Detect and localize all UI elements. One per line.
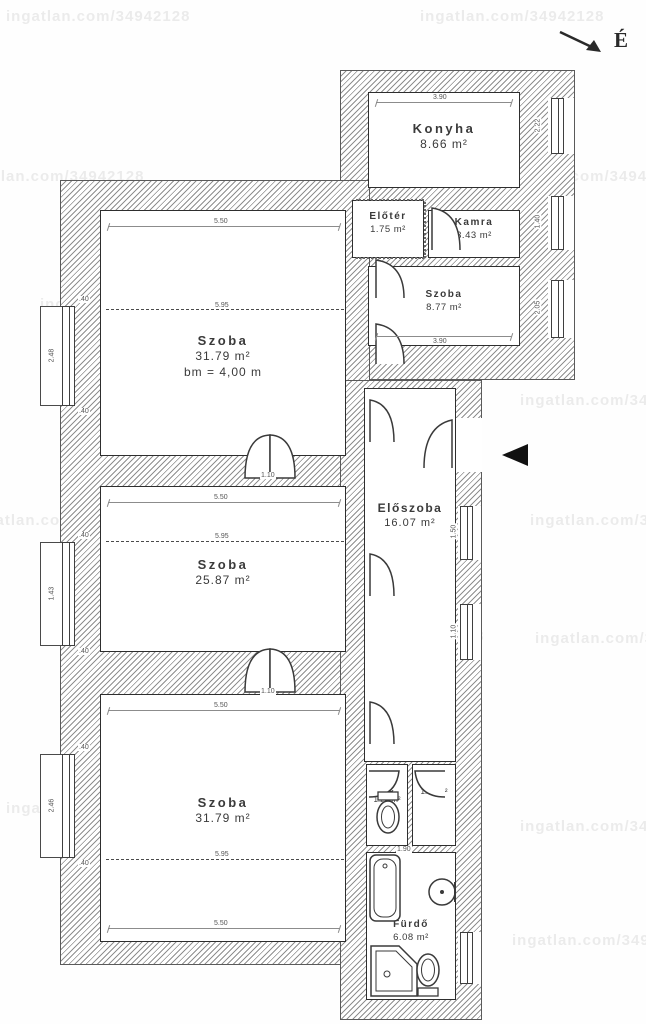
room-eloter: Előtér 1.75 m² xyxy=(352,200,424,258)
dimension-label: 5.50 xyxy=(213,218,229,225)
dimension-line xyxy=(108,502,340,503)
toilet-icon xyxy=(374,790,402,838)
dimension-label: 1.10 xyxy=(450,624,457,640)
room-name: Előtér xyxy=(353,211,423,224)
window-icon xyxy=(551,98,564,154)
door-arc-icon xyxy=(422,418,456,470)
north-arrow-icon xyxy=(556,24,612,64)
watermark: ingatlan.com/34942128 xyxy=(6,8,190,25)
dimension-label: 2.22 xyxy=(534,118,541,134)
dimension-label: .40 xyxy=(78,744,90,751)
dimension-line xyxy=(108,226,340,227)
room-area: 31.79 m² xyxy=(101,811,345,827)
door-arc-icon xyxy=(413,767,447,799)
dimension-label: 1.40 xyxy=(534,214,541,230)
window-icon xyxy=(460,932,473,984)
open-passage xyxy=(356,199,424,201)
room-area: 6.08 m² xyxy=(367,932,455,944)
dimension-line xyxy=(108,928,340,929)
dimension-line xyxy=(108,710,340,711)
dimension-label: 2.46 xyxy=(48,798,55,814)
double-door-icon xyxy=(242,646,298,694)
dimension-label: .40 xyxy=(78,408,90,415)
dimension-label: 5.95 xyxy=(214,533,230,540)
window-icon xyxy=(460,604,473,660)
room-area: 8.77 m² xyxy=(369,302,519,314)
room-name: Szoba xyxy=(101,795,345,811)
door-arc-icon xyxy=(366,552,396,598)
dimension-label: 1.10 xyxy=(260,472,276,479)
dimension-label: .40 xyxy=(78,296,90,303)
window-icon xyxy=(460,506,473,560)
watermark: ingatlan.com/34942128 xyxy=(535,630,646,647)
dimension-label: 3.90 xyxy=(432,338,448,345)
watermark: ingatlan.com/34942128 xyxy=(512,932,646,949)
door-arc-icon xyxy=(372,258,406,300)
window-icon xyxy=(62,542,75,646)
bathtub-icon xyxy=(369,854,401,922)
dimension-label: 2.05 xyxy=(534,300,541,316)
toilet-icon xyxy=(414,950,442,998)
window-icon xyxy=(551,280,564,338)
dimension-label: 1.10 xyxy=(260,688,276,695)
open-passage xyxy=(424,202,426,258)
window-icon xyxy=(62,306,75,406)
room-name: Konyha xyxy=(369,121,519,137)
floor-plan: ingatlan.com/34942128 ingatlan.com/34942… xyxy=(0,0,646,1024)
sink-icon xyxy=(426,876,456,908)
entrance-arrow-icon xyxy=(502,444,528,466)
dimension-label: .40 xyxy=(78,648,90,655)
room-name: Előszoba xyxy=(365,501,455,516)
room-szoba-felso: Szoba 31.79 m² bm = 4,00 m xyxy=(100,210,346,456)
north-label: É xyxy=(614,28,628,53)
watermark: ingatlan.com/34942128 xyxy=(520,392,646,409)
room-szoba-kozepso: Szoba 25.87 m² xyxy=(100,486,346,652)
room-area: 31.79 m² xyxy=(101,349,345,365)
dimension-label: 1.50 xyxy=(450,524,457,540)
dimension-line xyxy=(376,336,512,337)
dimension-label: .40 xyxy=(78,532,90,539)
dimension-label: 5.50 xyxy=(213,494,229,501)
room-szoba-also: Szoba 31.79 m² xyxy=(100,694,346,942)
dashed-midline xyxy=(106,541,344,542)
dimension-label: 1.90 xyxy=(396,846,412,853)
dimension-label: 5.95 xyxy=(214,851,230,858)
entrance-opening xyxy=(456,418,482,472)
watermark: ingatlan.com/34942128 xyxy=(420,8,604,25)
room-note: bm = 4,00 m xyxy=(101,365,345,381)
door-arc-icon xyxy=(372,322,406,366)
room-area: 8.66 m² xyxy=(369,137,519,153)
dimension-label: 2.48 xyxy=(48,348,55,364)
room-area: 16.07 m² xyxy=(365,516,455,530)
dimension-label: 3.90 xyxy=(432,94,448,101)
room-konyha: Konyha 8.66 m² xyxy=(368,92,520,188)
door-arc-icon xyxy=(366,398,396,444)
dimension-label: .40 xyxy=(78,860,90,867)
dimension-line xyxy=(376,102,512,103)
watermark: ingatlan.com/34942128 xyxy=(530,512,646,529)
dimension-label: 1.43 xyxy=(48,586,55,602)
shower-icon xyxy=(369,944,419,998)
door-arc-icon xyxy=(366,700,396,746)
dimension-label: 5.95 xyxy=(214,302,230,309)
room-area: 1.75 m² xyxy=(353,224,423,236)
watermark: ingatlan.com/34942128 xyxy=(520,818,646,835)
window-icon xyxy=(551,196,564,250)
window-icon xyxy=(62,754,75,858)
room-name: Szoba xyxy=(101,333,345,349)
dashed-midline xyxy=(106,859,344,860)
dimension-label: 5.50 xyxy=(213,920,229,927)
dimension-label: 5.50 xyxy=(213,702,229,709)
dashed-midline xyxy=(106,309,344,310)
room-area: 25.87 m² xyxy=(101,573,345,589)
door-arc-icon xyxy=(428,206,462,252)
room-name: Szoba xyxy=(101,557,345,573)
